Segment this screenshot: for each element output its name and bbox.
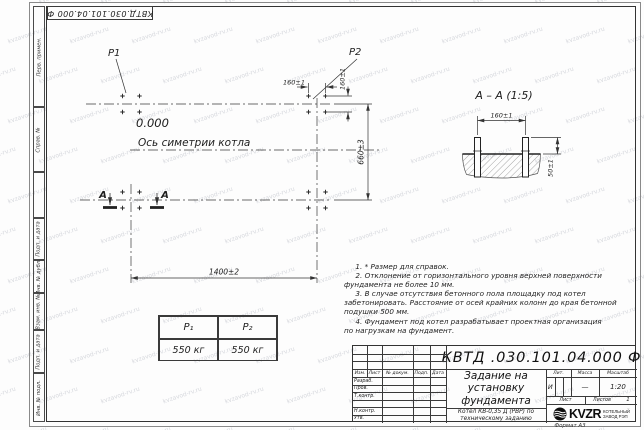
scale-value: 1:20 bbox=[599, 377, 637, 396]
dim-160-vertical: 160±1 bbox=[339, 68, 347, 90]
logo-text: KVZR bbox=[569, 407, 601, 421]
grid-line bbox=[546, 404, 637, 405]
dim-50-section: 50±1 bbox=[547, 159, 555, 177]
grid-line bbox=[555, 377, 556, 396]
dim-160-section: 160±1 bbox=[491, 112, 513, 120]
row-tkontr: Т.контр. bbox=[354, 393, 381, 399]
p1-load-label: P1 bbox=[108, 48, 120, 59]
section-letter-a-right: А bbox=[160, 190, 169, 201]
grid-line bbox=[353, 407, 446, 408]
p2-load-label: P2 bbox=[349, 47, 361, 58]
lit-value: И bbox=[546, 377, 555, 396]
grid-line bbox=[599, 369, 600, 396]
grid-line bbox=[563, 377, 564, 396]
kvzr-emblem-icon bbox=[553, 407, 567, 421]
grid-line bbox=[353, 369, 637, 370]
plan-dimension-lines bbox=[116, 59, 372, 278]
section-letter-a-left: А bbox=[98, 190, 107, 201]
row-utv: Утв. bbox=[354, 416, 381, 422]
grid-line bbox=[353, 377, 446, 378]
sheets-value: 1 bbox=[619, 396, 637, 404]
grid-line bbox=[446, 408, 546, 409]
mass-header: Масса bbox=[571, 369, 599, 377]
col-header-data: Дата bbox=[430, 370, 446, 376]
mass-value: — bbox=[571, 377, 599, 396]
grid-line bbox=[546, 377, 637, 378]
row-blank bbox=[354, 401, 381, 407]
row-razrab: Разраб. bbox=[354, 378, 381, 384]
company-logo: KVZR КОТЕЛЬНЫЙ ЗАВОД РЭП bbox=[546, 404, 637, 423]
col-header-podp: Подп. bbox=[413, 370, 430, 376]
anchor-bolt-marks bbox=[120, 94, 327, 210]
sheets-label: Листов bbox=[585, 396, 619, 404]
doc-number: КВТД .030.101.04.000 Ф bbox=[446, 346, 637, 369]
load-table-header-p2: P₂ bbox=[218, 316, 277, 339]
plan-centerlines bbox=[80, 98, 380, 283]
item-name: Котел КВ-0,35 Д (РВР) по техническому за… bbox=[446, 408, 546, 423]
logo-caption: КОТЕЛЬНЫЙ ЗАВОД РЭП bbox=[603, 409, 630, 419]
row-nkontr: Н.контр. bbox=[354, 408, 381, 414]
load-table-value-p2: 550 кг bbox=[218, 339, 277, 361]
row-prov: Пров. bbox=[354, 386, 381, 392]
grid-line bbox=[571, 369, 572, 396]
load-table-header-p1: P₁ bbox=[159, 316, 218, 339]
dim-1400: 1400±2 bbox=[209, 268, 239, 277]
boiler-symmetry-axis-label: Ось симетрии котла bbox=[138, 137, 250, 149]
technical-notes: 1. * Размер для справок. 2. Отклонение о… bbox=[344, 262, 640, 335]
grid-line bbox=[353, 400, 446, 401]
grid-line bbox=[546, 396, 637, 397]
grid-line bbox=[353, 354, 446, 355]
sheet-label: Лист bbox=[546, 396, 585, 404]
title-block: Изм. Лист № докум. Подп. Дата Разраб. Пр… bbox=[352, 345, 636, 422]
elevation-mark: 0.000 bbox=[136, 116, 169, 130]
drawing-sheet: kvzavod-rv.rukvzavod-rv.rukvzavod-rv.ruk… bbox=[0, 0, 644, 430]
grid-line bbox=[446, 346, 447, 423]
doc-title: Задание на установку фундамента bbox=[446, 369, 546, 408]
lit-header: Лит. bbox=[546, 369, 571, 377]
scale-header: Масштаб bbox=[599, 369, 637, 377]
grid-line bbox=[353, 415, 446, 416]
grid-line bbox=[353, 361, 446, 362]
col-header-dokum: № докум. bbox=[382, 370, 413, 376]
grid-line bbox=[585, 396, 586, 404]
section-view-concrete-pad bbox=[463, 138, 541, 179]
dim-660: 660±3 bbox=[357, 139, 366, 165]
load-table-value-p1: 550 кг bbox=[159, 339, 218, 361]
col-header-izm: Изм. bbox=[353, 370, 367, 376]
col-header-list: Лист bbox=[367, 370, 382, 376]
section-view-title: А – А (1:5) bbox=[474, 89, 532, 102]
format-label: Формат А3 bbox=[538, 423, 602, 429]
dim-160-horizontal: 160±1 bbox=[283, 79, 305, 87]
section-view-dimension-lines bbox=[478, 116, 562, 154]
load-table: P₁ P₂ 550 кг 550 кг bbox=[158, 315, 278, 361]
grid-line bbox=[353, 385, 446, 386]
grid-line bbox=[353, 392, 446, 393]
